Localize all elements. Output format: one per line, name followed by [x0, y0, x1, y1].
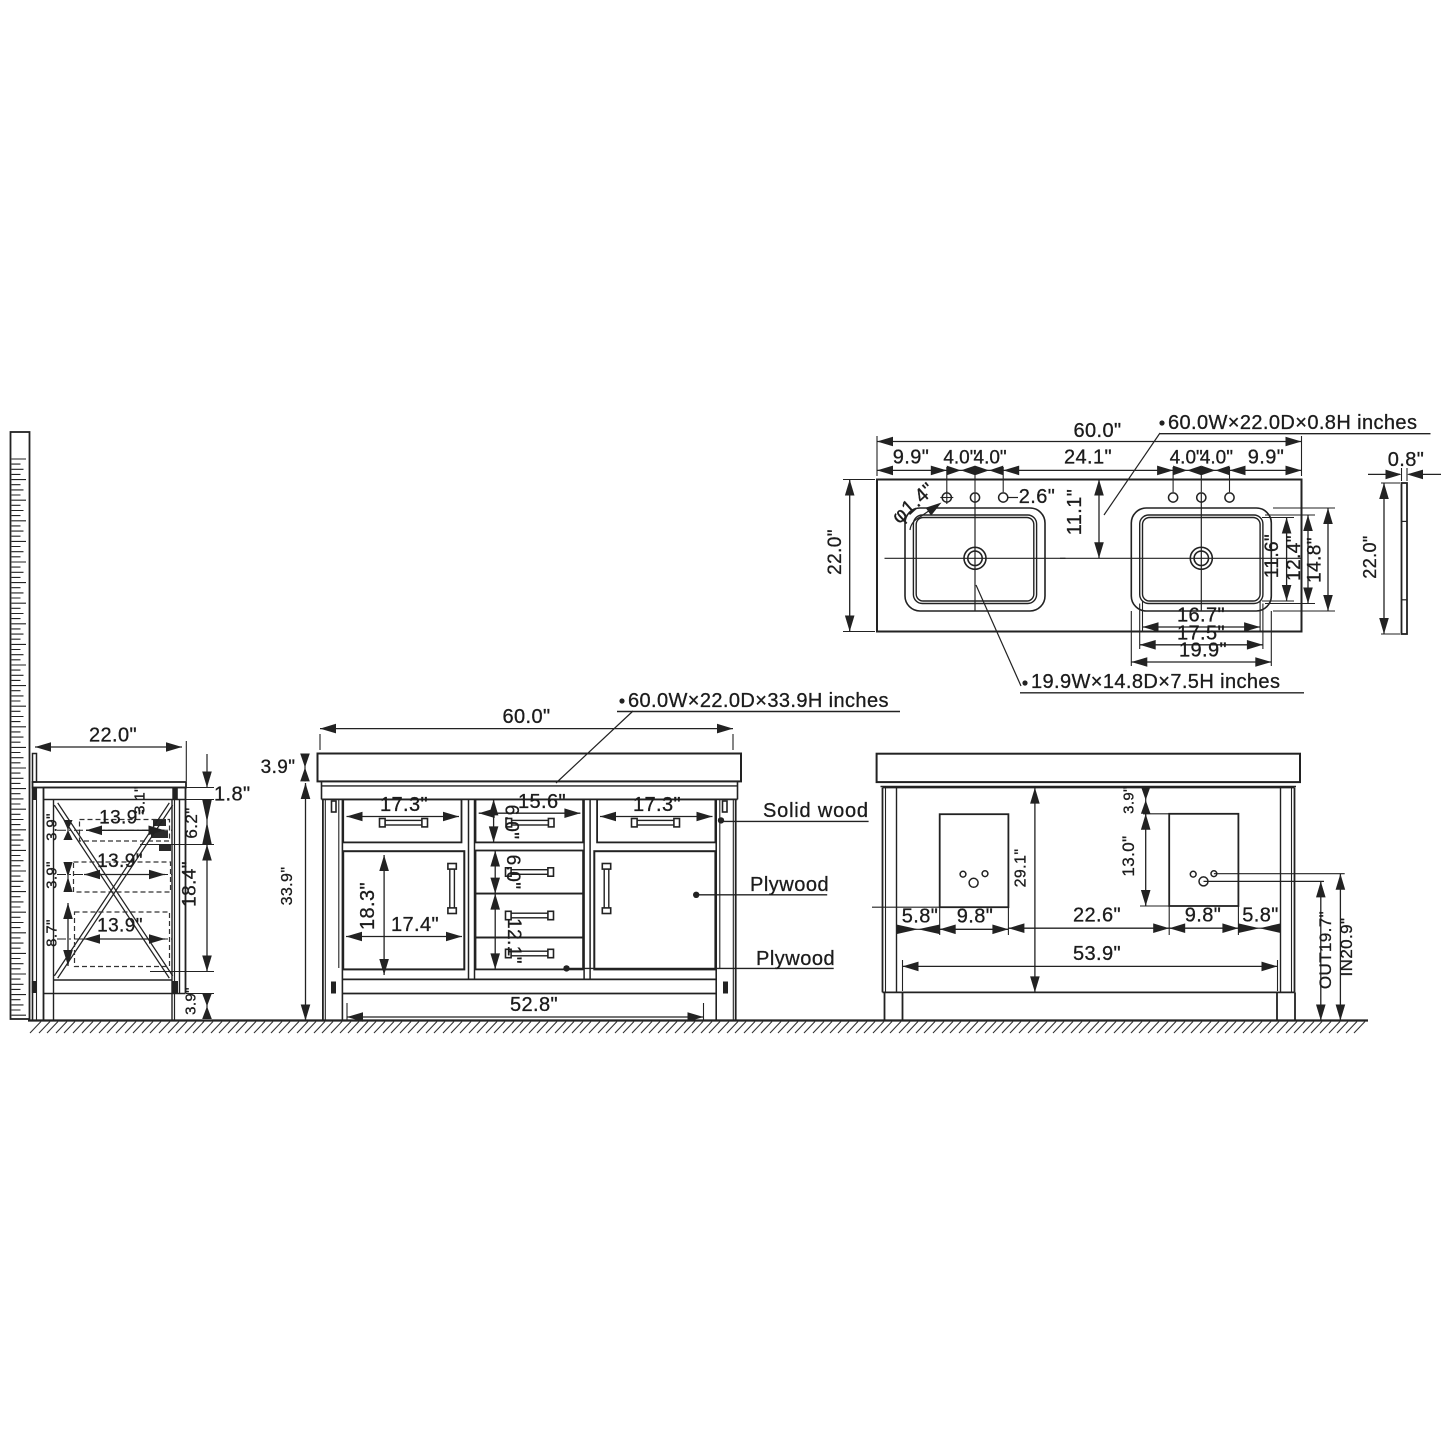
svg-text:6.0": 6.0" [502, 855, 523, 890]
svg-text:4.0": 4.0" [1200, 448, 1233, 469]
svg-text:9.9": 9.9" [1248, 447, 1285, 469]
svg-text:18.3": 18.3" [357, 882, 379, 930]
svg-text:29.1": 29.1" [1013, 849, 1030, 888]
svg-text:3.9": 3.9" [1121, 786, 1138, 814]
svg-text:19.9": 19.9" [1179, 640, 1227, 662]
svg-text:19.9W×14.8D×7.5H inches: 19.9W×14.8D×7.5H inches [1031, 671, 1280, 693]
svg-text:4.0": 4.0" [1170, 448, 1203, 469]
svg-text:9.9": 9.9" [893, 447, 930, 469]
svg-text:22.0": 22.0" [1360, 535, 1380, 578]
svg-text:60.0W×22.0D×33.9H inches: 60.0W×22.0D×33.9H inches [628, 690, 889, 712]
svg-text:3.9": 3.9" [183, 987, 200, 1015]
svg-text:13.9": 13.9" [97, 851, 143, 872]
svg-text:OUT19.7": OUT19.7" [1316, 911, 1335, 989]
svg-text:8.7": 8.7" [44, 919, 61, 947]
svg-text:24.1": 24.1" [1064, 447, 1112, 469]
svg-text:Solid wood: Solid wood [763, 800, 869, 822]
svg-text:22.0": 22.0" [825, 529, 846, 575]
svg-text:22.0": 22.0" [89, 725, 137, 747]
svg-text:3.1": 3.1" [132, 786, 149, 814]
svg-text:3.9": 3.9" [261, 757, 296, 778]
svg-text:Plywood: Plywood [750, 874, 829, 896]
svg-text:2.6": 2.6" [1019, 486, 1056, 508]
svg-text:4.0": 4.0" [943, 448, 976, 469]
svg-text:60.0": 60.0" [502, 706, 550, 728]
svg-text:52.8": 52.8" [510, 994, 558, 1016]
svg-text:60.0": 60.0" [1073, 420, 1121, 442]
svg-text:14.8": 14.8" [1305, 537, 1326, 583]
svg-text:13.9": 13.9" [97, 916, 143, 937]
svg-text:9.8": 9.8" [957, 906, 994, 928]
svg-text:11.6": 11.6" [1262, 534, 1283, 578]
svg-text:5.8": 5.8" [1242, 905, 1279, 927]
svg-text:9.8": 9.8" [1185, 905, 1222, 927]
svg-text:3.9": 3.9" [44, 861, 61, 889]
svg-text:12.1": 12.1" [503, 918, 524, 964]
svg-text:5.8": 5.8" [902, 906, 939, 928]
svg-text:0.8": 0.8" [1388, 449, 1425, 471]
svg-text:17.3": 17.3" [380, 794, 428, 816]
svg-text:18.4": 18.4" [180, 861, 201, 907]
svg-text:17.3": 17.3" [633, 794, 681, 816]
svg-text:13.0": 13.0" [1119, 835, 1138, 876]
svg-text:IN20.9": IN20.9" [1337, 918, 1356, 977]
svg-text:12.4": 12.4" [1284, 535, 1305, 581]
svg-text:6.0": 6.0" [501, 805, 522, 840]
svg-text:6.2": 6.2" [182, 807, 201, 838]
svg-text:3.9": 3.9" [44, 813, 61, 841]
svg-text:11.1": 11.1" [1064, 489, 1086, 536]
svg-text:53.9": 53.9" [1073, 943, 1121, 965]
svg-text:22.6": 22.6" [1073, 905, 1121, 927]
svg-text:60.0W×22.0D×0.8H inches: 60.0W×22.0D×0.8H inches [1168, 412, 1417, 434]
svg-text:33.9": 33.9" [279, 867, 296, 906]
svg-text:Plywood: Plywood [756, 948, 835, 970]
svg-text:15.6": 15.6" [518, 791, 566, 813]
svg-text:4.0": 4.0" [974, 448, 1007, 469]
svg-text:1.8": 1.8" [214, 784, 251, 806]
svg-text:17.4": 17.4" [391, 914, 439, 936]
